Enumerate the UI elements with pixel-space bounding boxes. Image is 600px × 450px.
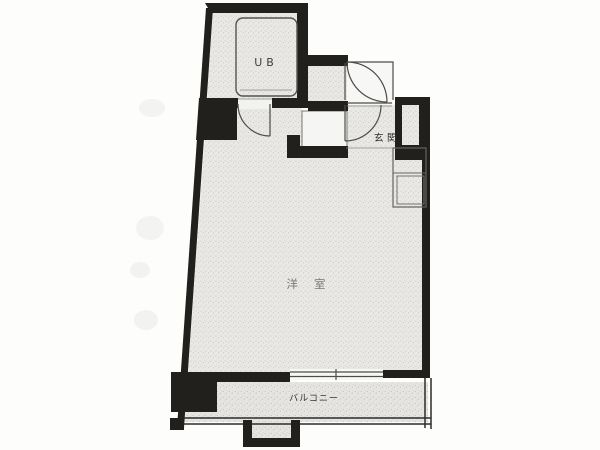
entrance-closet (302, 111, 347, 147)
wall-ub-right (297, 3, 308, 101)
wall-ub-bottom-right (272, 98, 308, 108)
main-room-label: 洋室 (287, 277, 342, 291)
entrance-label: 玄関 (374, 132, 400, 144)
pipe-space-interior (402, 105, 419, 145)
wall-landing-top (303, 55, 348, 66)
wall-landing-bottom (308, 101, 348, 111)
unit-bath-label: UB (254, 56, 278, 69)
balcony-step-area (252, 418, 291, 438)
unit-bath-area (207, 10, 303, 100)
wall-top (205, 3, 303, 13)
balcony-window (290, 369, 383, 380)
wall-closet-end (287, 135, 300, 158)
wall-balcony-corner (170, 418, 184, 430)
wall-corner-chunk (196, 98, 237, 140)
wall-balcony-chunk (171, 372, 217, 412)
hall-landing-area (308, 62, 347, 105)
balcony-label: バルコニー (289, 393, 339, 404)
wall-bottom-right (380, 370, 430, 378)
floor-plan-svg: UB 玄関 洋室 バルコニー (0, 0, 600, 450)
floor-plan-page: UB 玄関 洋室 バルコニー (0, 0, 600, 450)
